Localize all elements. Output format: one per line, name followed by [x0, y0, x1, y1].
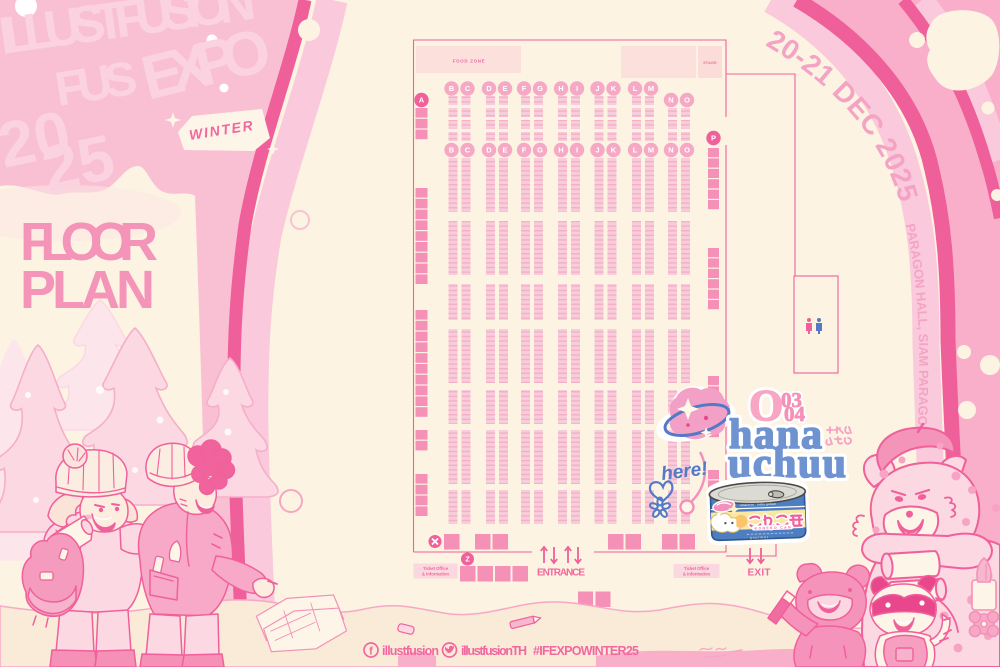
svg-text:PLAN: PLAN — [20, 260, 155, 320]
svg-text:25: 25 — [36, 120, 121, 205]
svg-text:K: K — [611, 84, 617, 93]
svg-text:N: N — [668, 96, 673, 105]
svg-text:M: M — [648, 146, 654, 155]
svg-text:L: L — [633, 146, 638, 155]
svg-text:D: D — [486, 84, 492, 93]
svg-text:K: K — [611, 146, 617, 155]
svg-text:F: F — [522, 84, 527, 93]
svg-text:O: O — [684, 96, 690, 105]
svg-text:F: F — [522, 146, 527, 155]
svg-text:H: H — [558, 146, 563, 155]
svg-text:N: N — [668, 146, 673, 155]
svg-text:I: I — [576, 84, 578, 93]
svg-text:STAGE: STAGE — [703, 61, 717, 65]
svg-text:D: D — [486, 146, 492, 155]
svg-text:f: f — [369, 646, 373, 658]
svg-text:O: O — [684, 146, 690, 155]
svg-text:M: M — [648, 84, 654, 93]
svg-text:C: C — [465, 146, 471, 155]
svg-text:Z: Z — [465, 555, 470, 564]
svg-text:G: G — [537, 146, 543, 155]
svg-text:E: E — [502, 146, 507, 155]
svg-text:B: B — [449, 84, 455, 93]
svg-text:C: C — [465, 84, 471, 93]
svg-text:& Information: & Information — [683, 572, 711, 577]
svg-text:A: A — [419, 96, 425, 105]
svg-text:ENTRANCE: ENTRANCE — [537, 568, 585, 579]
svg-text:Ticket Office: Ticket Office — [684, 566, 710, 571]
svg-text:& Information: & Information — [422, 572, 450, 577]
svg-text:J: J — [595, 146, 599, 155]
svg-text:#IFEXPOWINTER25: #IFEXPOWINTER25 — [533, 644, 639, 658]
svg-text:EXIT: EXIT — [748, 568, 771, 579]
svg-text:L: L — [633, 84, 638, 93]
svg-text:E: E — [502, 84, 507, 93]
svg-text:FOOD ZONE: FOOD ZONE — [453, 59, 485, 64]
svg-text:Ticket Office: Ticket Office — [423, 566, 449, 571]
svg-text:H: H — [558, 84, 563, 93]
svg-text:I: I — [576, 146, 578, 155]
svg-text:G: G — [537, 84, 543, 93]
svg-text:J: J — [595, 84, 599, 93]
svg-text:illustfusionTH: illustfusionTH — [461, 644, 527, 658]
svg-text:P: P — [711, 134, 716, 143]
svg-text:B: B — [449, 146, 455, 155]
svg-text:illustfusion: illustfusion — [382, 644, 439, 658]
